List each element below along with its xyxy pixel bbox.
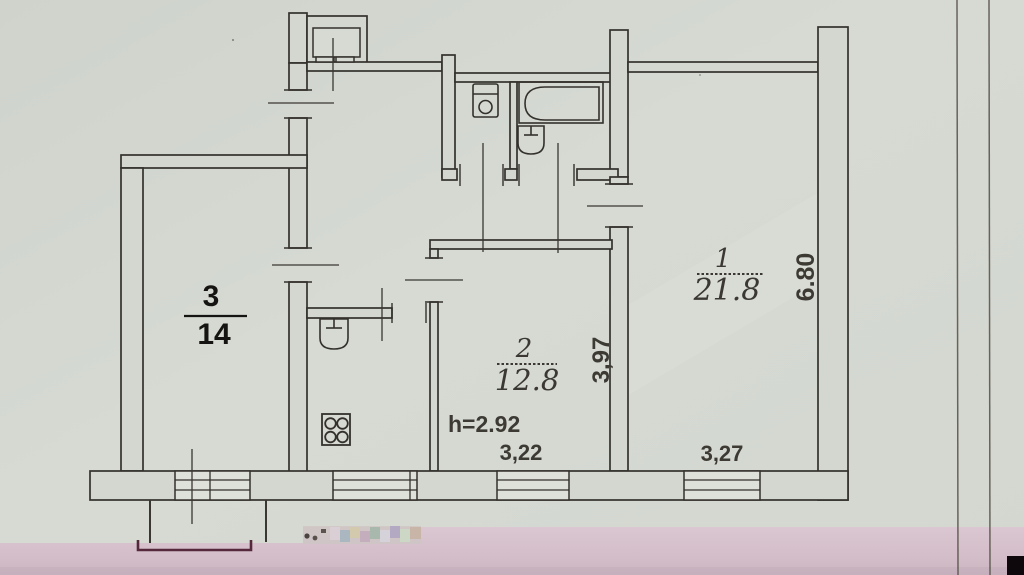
dim-ceiling-height: h=2.92 <box>448 411 520 437</box>
room-3-area: 14 <box>197 318 231 351</box>
window-room1 <box>684 471 760 500</box>
corner-black-mark <box>1007 556 1024 575</box>
dim-room2-width: 3,22 <box>500 440 543 465</box>
dim-room1-depth: 6.80 <box>792 253 820 302</box>
window-room2 <box>497 471 569 500</box>
floor-plan-drawing: 1 21.8 2 12.8 3 14 6.80 3,97 h=2.92 3,22… <box>0 0 1024 575</box>
floor-plan-scan: 1 21.8 2 12.8 3 14 6.80 3,97 h=2.92 3,22… <box>0 0 1024 575</box>
room-2-area: 12.8 <box>495 363 560 397</box>
pink-band-edge <box>0 567 1024 575</box>
paper-speck <box>699 74 701 76</box>
dim-room1-width: 3,27 <box>701 441 744 466</box>
room-3-number: 3 <box>203 280 220 313</box>
censored-text-block <box>303 526 421 544</box>
closet-interior <box>313 28 360 62</box>
room-1-number: 1 <box>715 244 732 274</box>
room-1-area: 21.8 <box>693 273 761 308</box>
window-kitchen <box>333 471 417 500</box>
room-2-number: 2 <box>515 334 533 364</box>
dim-room2-depth: 3,97 <box>588 337 615 384</box>
window-room3 <box>175 471 250 500</box>
paper-speck <box>232 39 234 41</box>
